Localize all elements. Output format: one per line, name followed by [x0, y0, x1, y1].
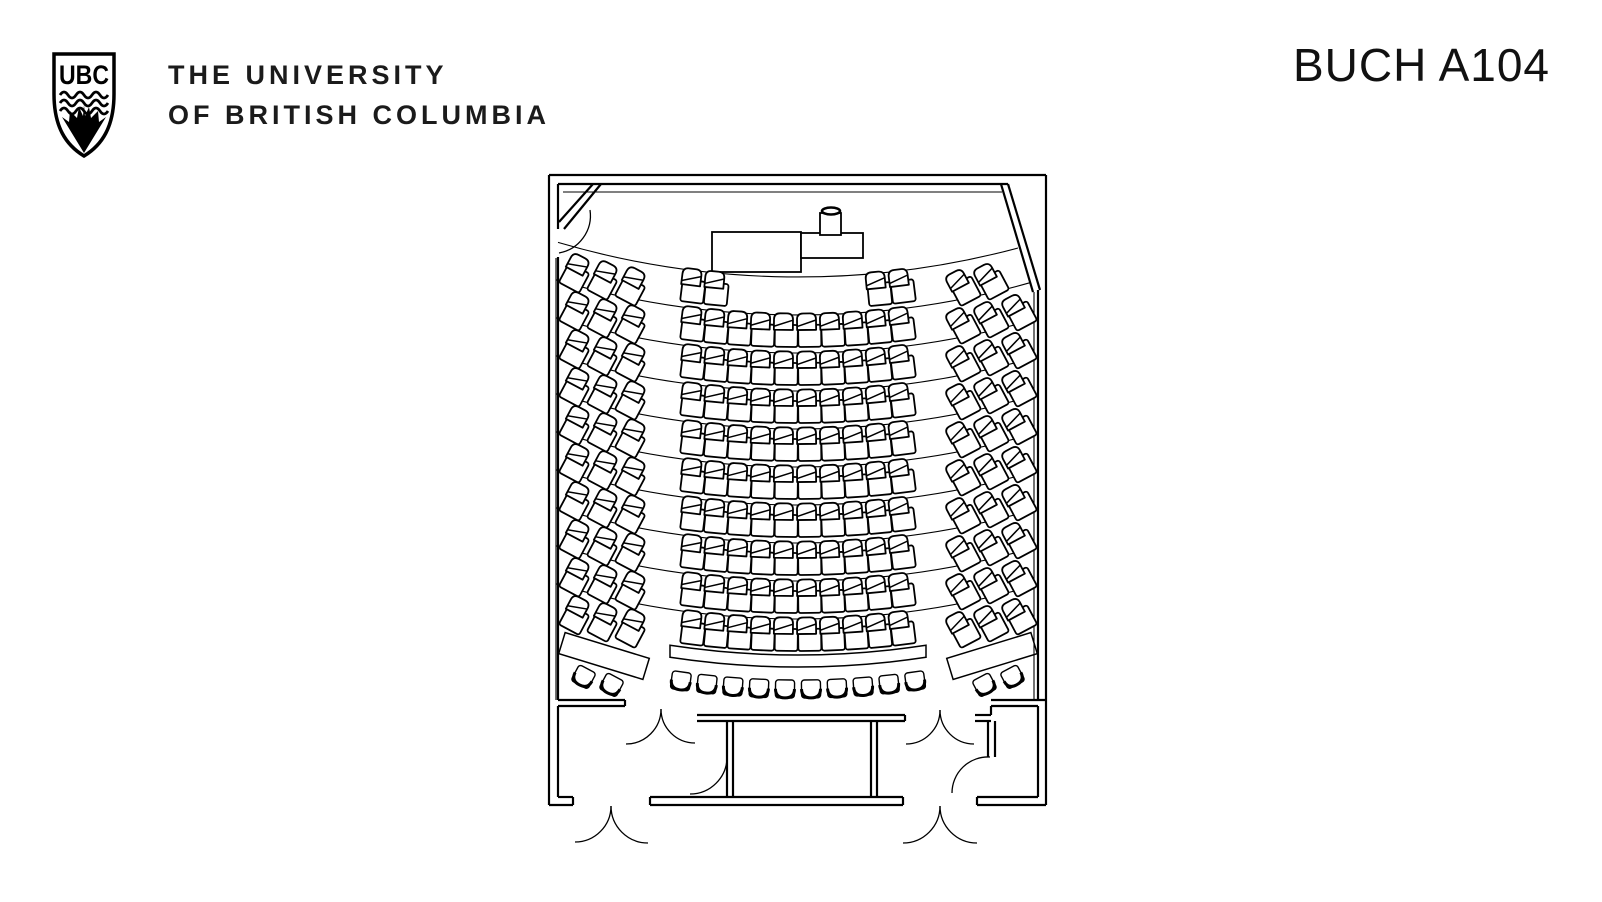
seat	[842, 577, 868, 612]
back-row-chair	[1000, 664, 1025, 689]
seat	[726, 463, 752, 498]
back-row-chair	[879, 674, 900, 694]
seat	[679, 306, 707, 342]
seat	[888, 458, 916, 494]
seat	[842, 425, 868, 460]
seat	[614, 493, 651, 534]
instructor-desk	[712, 232, 801, 272]
wall-segment	[1001, 184, 1033, 292]
seat	[750, 502, 775, 536]
seat	[888, 420, 916, 456]
door-swing-arc	[611, 806, 648, 843]
seat	[614, 455, 651, 496]
seat	[614, 569, 651, 610]
seat	[679, 496, 707, 532]
seat	[774, 579, 798, 613]
seat	[888, 610, 916, 646]
seat	[774, 427, 798, 461]
seat	[797, 617, 821, 651]
seat	[614, 265, 651, 306]
seat	[774, 503, 798, 537]
seat	[888, 306, 916, 342]
seat	[797, 465, 821, 499]
seat	[703, 422, 730, 458]
back-row-chair	[801, 680, 820, 698]
seat	[842, 463, 868, 498]
seat	[703, 270, 730, 306]
seat	[774, 617, 798, 651]
back-row-chair	[749, 679, 769, 698]
back-row-chair	[723, 677, 743, 696]
wall-segment	[564, 184, 601, 229]
seat	[842, 615, 868, 650]
seat	[703, 498, 730, 534]
seat	[703, 574, 730, 610]
seat	[888, 344, 916, 380]
seat	[797, 503, 821, 537]
door-swing-arc	[661, 709, 695, 743]
seat	[750, 578, 775, 612]
seat	[820, 464, 845, 498]
back-row-chair	[972, 672, 997, 697]
podium	[820, 213, 841, 235]
podium-top	[822, 208, 840, 215]
seating-area	[558, 252, 1037, 698]
seat	[614, 379, 651, 420]
seat	[614, 341, 651, 382]
seat	[703, 384, 730, 420]
seat	[797, 579, 821, 613]
door-swing-arc	[575, 806, 611, 842]
door-swing-arc	[690, 757, 727, 794]
seat	[820, 502, 845, 536]
back-row-chair	[599, 672, 624, 697]
seat	[614, 607, 651, 648]
seat	[888, 496, 916, 532]
seat	[679, 458, 707, 494]
teaching-station	[712, 208, 863, 273]
seat	[703, 536, 730, 572]
seat	[820, 388, 845, 422]
back-row-chair	[670, 671, 691, 691]
door-swing-arc	[940, 710, 974, 744]
seat	[726, 349, 752, 384]
seat	[750, 388, 775, 422]
seat	[820, 312, 845, 346]
seat	[888, 268, 916, 304]
seat	[726, 311, 752, 346]
seat	[797, 389, 821, 423]
seat	[750, 426, 775, 460]
seat	[750, 616, 775, 650]
seat	[774, 541, 798, 575]
door-swing-arc	[952, 757, 990, 793]
wall-segment	[559, 184, 593, 222]
seat	[774, 465, 798, 499]
seat	[703, 308, 730, 344]
seat	[726, 615, 752, 650]
seat	[797, 313, 821, 347]
seat	[726, 425, 752, 460]
door-swing-arc	[906, 710, 940, 744]
back-row-chair	[904, 671, 925, 691]
seat	[797, 427, 821, 461]
seat	[679, 420, 707, 456]
seat	[797, 541, 821, 575]
back-row-chair	[571, 664, 596, 689]
seat	[842, 349, 868, 384]
seat	[679, 344, 707, 380]
seat	[820, 426, 845, 460]
seat	[820, 540, 845, 574]
back-row-chair	[853, 677, 873, 696]
seat	[750, 540, 775, 574]
seat	[750, 350, 775, 384]
back-row-chair	[775, 680, 794, 698]
seat	[726, 387, 752, 422]
side-table	[801, 233, 863, 258]
seat	[679, 610, 707, 646]
seat	[774, 313, 798, 347]
seat	[842, 311, 868, 346]
seat	[750, 464, 775, 498]
seat	[679, 268, 707, 304]
seat	[679, 572, 707, 608]
seat	[797, 351, 821, 385]
seat	[842, 501, 868, 536]
seat	[774, 351, 798, 385]
seat	[703, 612, 730, 648]
seat	[726, 577, 752, 612]
back-row-chair	[696, 674, 717, 694]
seat	[774, 389, 798, 423]
door-swing-arc	[626, 709, 661, 744]
back-row-chair	[827, 679, 847, 698]
seat	[726, 539, 752, 574]
seat	[703, 460, 730, 496]
seat	[842, 387, 868, 422]
floor-plan	[0, 0, 1602, 902]
seat	[614, 303, 651, 344]
door-swing-arc	[903, 806, 940, 843]
seat	[820, 578, 845, 612]
seat	[726, 501, 752, 536]
seat	[614, 417, 651, 458]
seat	[820, 350, 845, 384]
wall-segment	[1008, 184, 1040, 290]
seat	[703, 346, 730, 382]
seat	[888, 382, 916, 418]
seat	[750, 312, 775, 346]
seat	[888, 572, 916, 608]
page: UBC THE UNIVERSITY OF BRITISH COLUMBIA B…	[0, 0, 1602, 902]
seat	[888, 534, 916, 570]
seat	[679, 382, 707, 418]
seat	[820, 616, 845, 650]
seat	[842, 539, 868, 574]
door-swing-arc	[940, 806, 977, 843]
seat	[614, 531, 651, 572]
seat	[679, 534, 707, 570]
